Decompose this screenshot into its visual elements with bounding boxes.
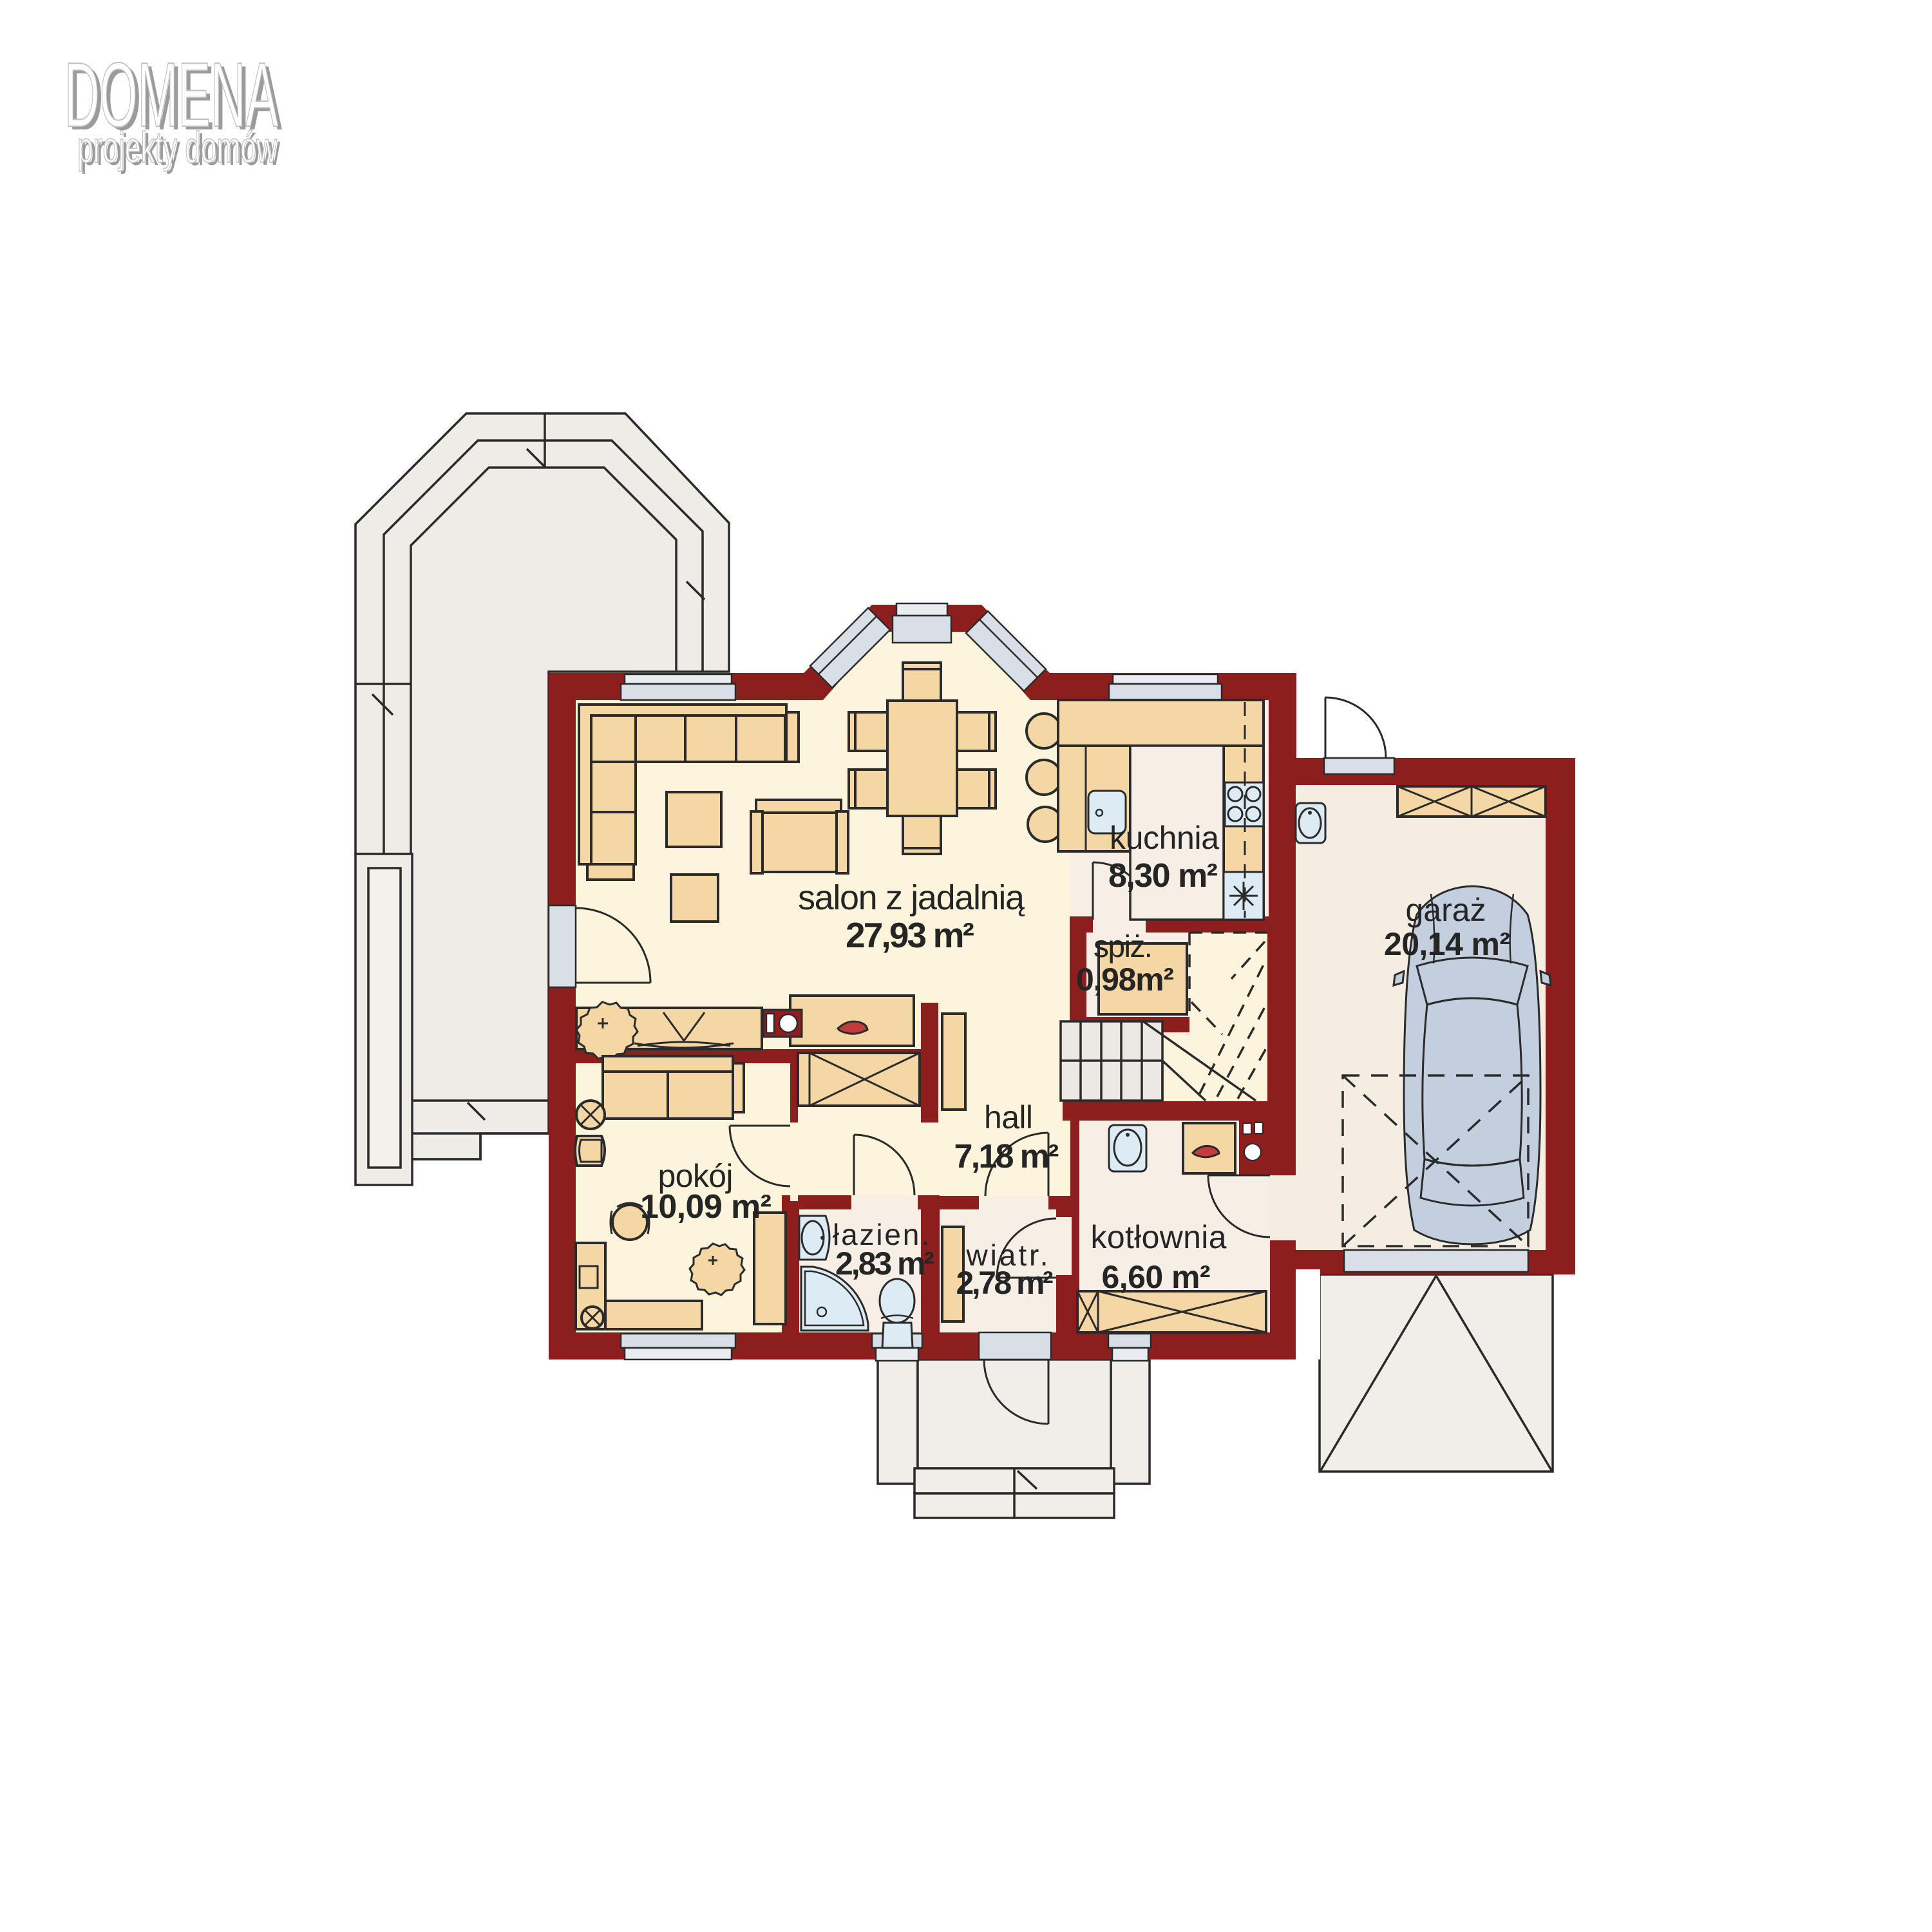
- svg-text:2,78 m²: 2,78 m²: [956, 1265, 1054, 1301]
- svg-text:salon z jadalnią: salon z jadalnią: [798, 878, 1025, 917]
- svg-text:6,60 m²: 6,60 m²: [1102, 1259, 1211, 1295]
- svg-text:projekty domów: projekty domów: [77, 123, 278, 172]
- svg-text:10,09 m²: 10,09 m²: [640, 1188, 772, 1226]
- svg-text:0,98m²: 0,98m²: [1076, 961, 1174, 998]
- svg-text:kuchnia: kuchnia: [1110, 820, 1219, 856]
- svg-text:7,18 m²: 7,18 m²: [954, 1138, 1059, 1175]
- svg-text:hall: hall: [984, 1099, 1033, 1135]
- svg-text:8,30 m²: 8,30 m²: [1108, 857, 1218, 895]
- svg-text:20,14 m²: 20,14 m²: [1384, 926, 1510, 962]
- svg-text:garaż: garaż: [1406, 892, 1486, 928]
- svg-text:2,83 m²: 2,83 m²: [835, 1245, 934, 1282]
- svg-text:27,93 m²: 27,93 m²: [846, 915, 974, 955]
- svg-text:spiż.: spiż.: [1094, 930, 1153, 964]
- svg-text:kotłownia: kotłownia: [1091, 1219, 1227, 1255]
